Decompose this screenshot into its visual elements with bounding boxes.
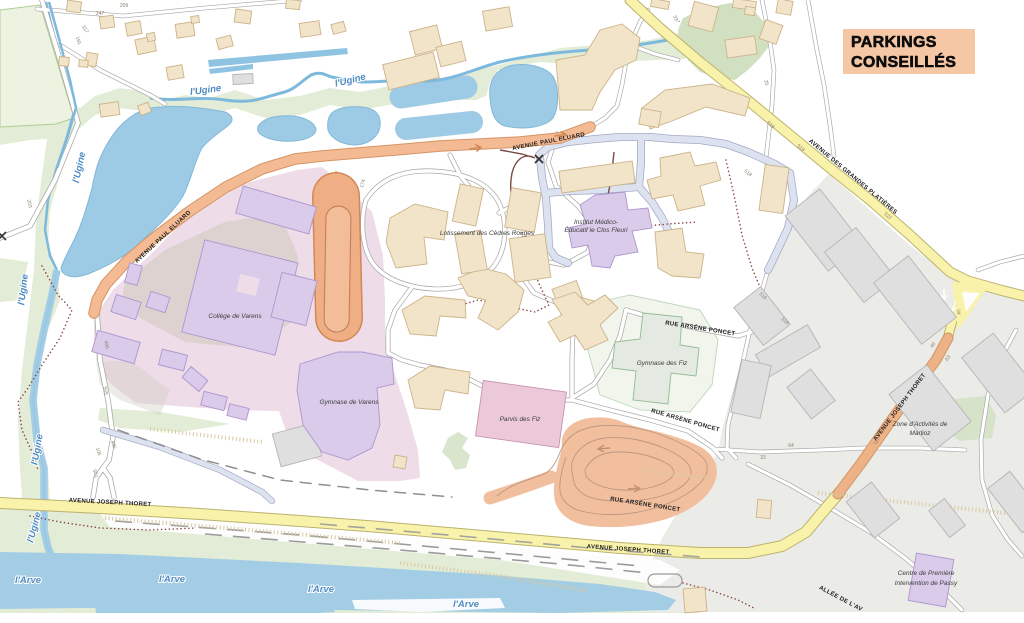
svg-text:24: 24: [955, 309, 961, 315]
svg-text:l'Arve: l'Arve: [453, 599, 480, 610]
svg-text:Centre de Première: Centre de Première: [898, 570, 955, 577]
svg-text:Institut Médico-: Institut Médico-: [574, 219, 619, 226]
svg-text:Collège de Varens: Collège de Varens: [208, 313, 262, 320]
svg-text:Gymnase de Varens: Gymnase de Varens: [319, 399, 379, 406]
svg-text:l'Arve: l'Arve: [308, 584, 335, 595]
svg-text:Parvis des Fiz: Parvis des Fiz: [500, 416, 542, 423]
svg-text:Gymnase des Fiz: Gymnase des Fiz: [637, 360, 688, 367]
svg-text:Éducatif le Clos Fleuri: Éducatif le Clos Fleuri: [564, 225, 628, 234]
svg-text:Lotissement des Cèdres Rouges: Lotissement des Cèdres Rouges: [440, 230, 535, 237]
svg-text:l'Arve: l'Arve: [159, 574, 186, 585]
svg-text:247: 247: [96, 11, 105, 17]
svg-text:Intervention de Passy: Intervention de Passy: [895, 580, 958, 587]
svg-text:Zone d'Activités de: Zone d'Activités de: [892, 421, 948, 428]
svg-text:33: 33: [760, 455, 766, 461]
svg-text:64: 64: [788, 443, 794, 449]
svg-text:Marlioz: Marlioz: [910, 430, 932, 437]
svg-text:209: 209: [120, 3, 129, 9]
svg-text:l'Arve: l'Arve: [15, 575, 42, 586]
